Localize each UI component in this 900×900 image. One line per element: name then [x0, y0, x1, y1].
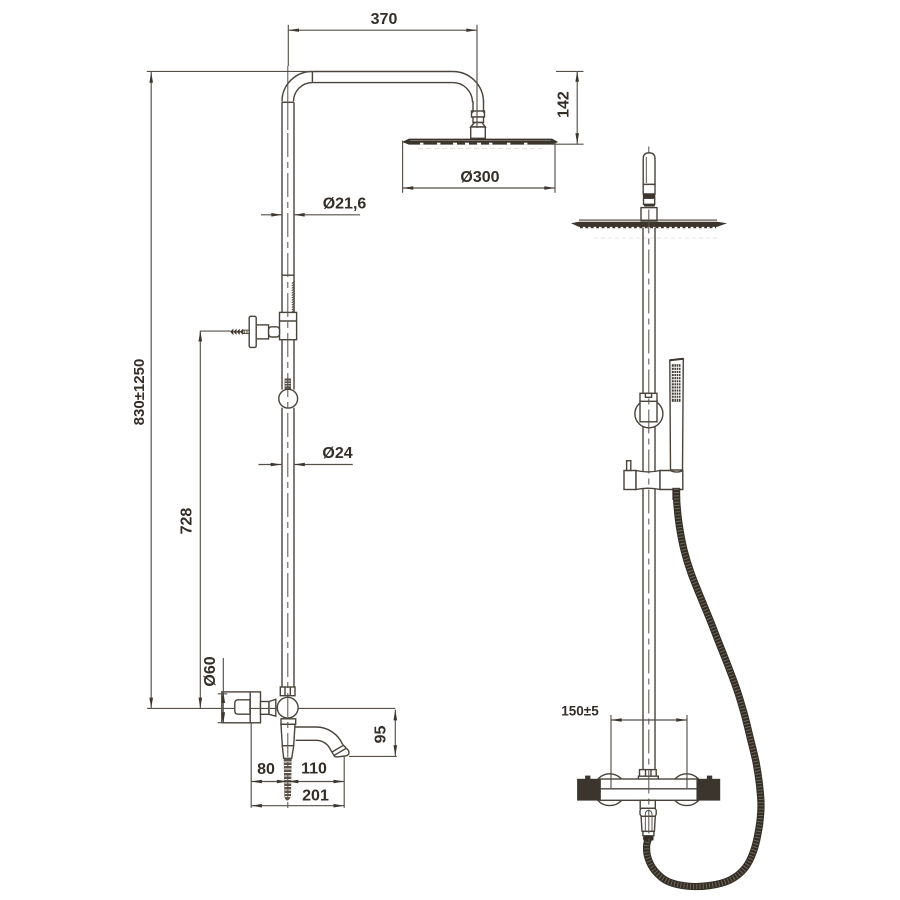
svg-text:728: 728: [179, 508, 196, 535]
svg-text:Ø60: Ø60: [202, 656, 219, 686]
svg-text:80: 80: [257, 761, 275, 778]
svg-text:830±1250: 830±1250: [131, 359, 148, 426]
svg-text:150±5: 150±5: [561, 704, 599, 719]
svg-text:370: 370: [371, 11, 398, 28]
svg-text:Ø24: Ø24: [322, 445, 352, 462]
svg-text:95: 95: [373, 726, 390, 744]
svg-text:Ø21,6: Ø21,6: [323, 196, 367, 213]
svg-text:Ø300: Ø300: [460, 169, 499, 186]
svg-text:142: 142: [556, 91, 573, 118]
svg-text:201: 201: [302, 788, 329, 805]
svg-text:110: 110: [301, 760, 327, 777]
